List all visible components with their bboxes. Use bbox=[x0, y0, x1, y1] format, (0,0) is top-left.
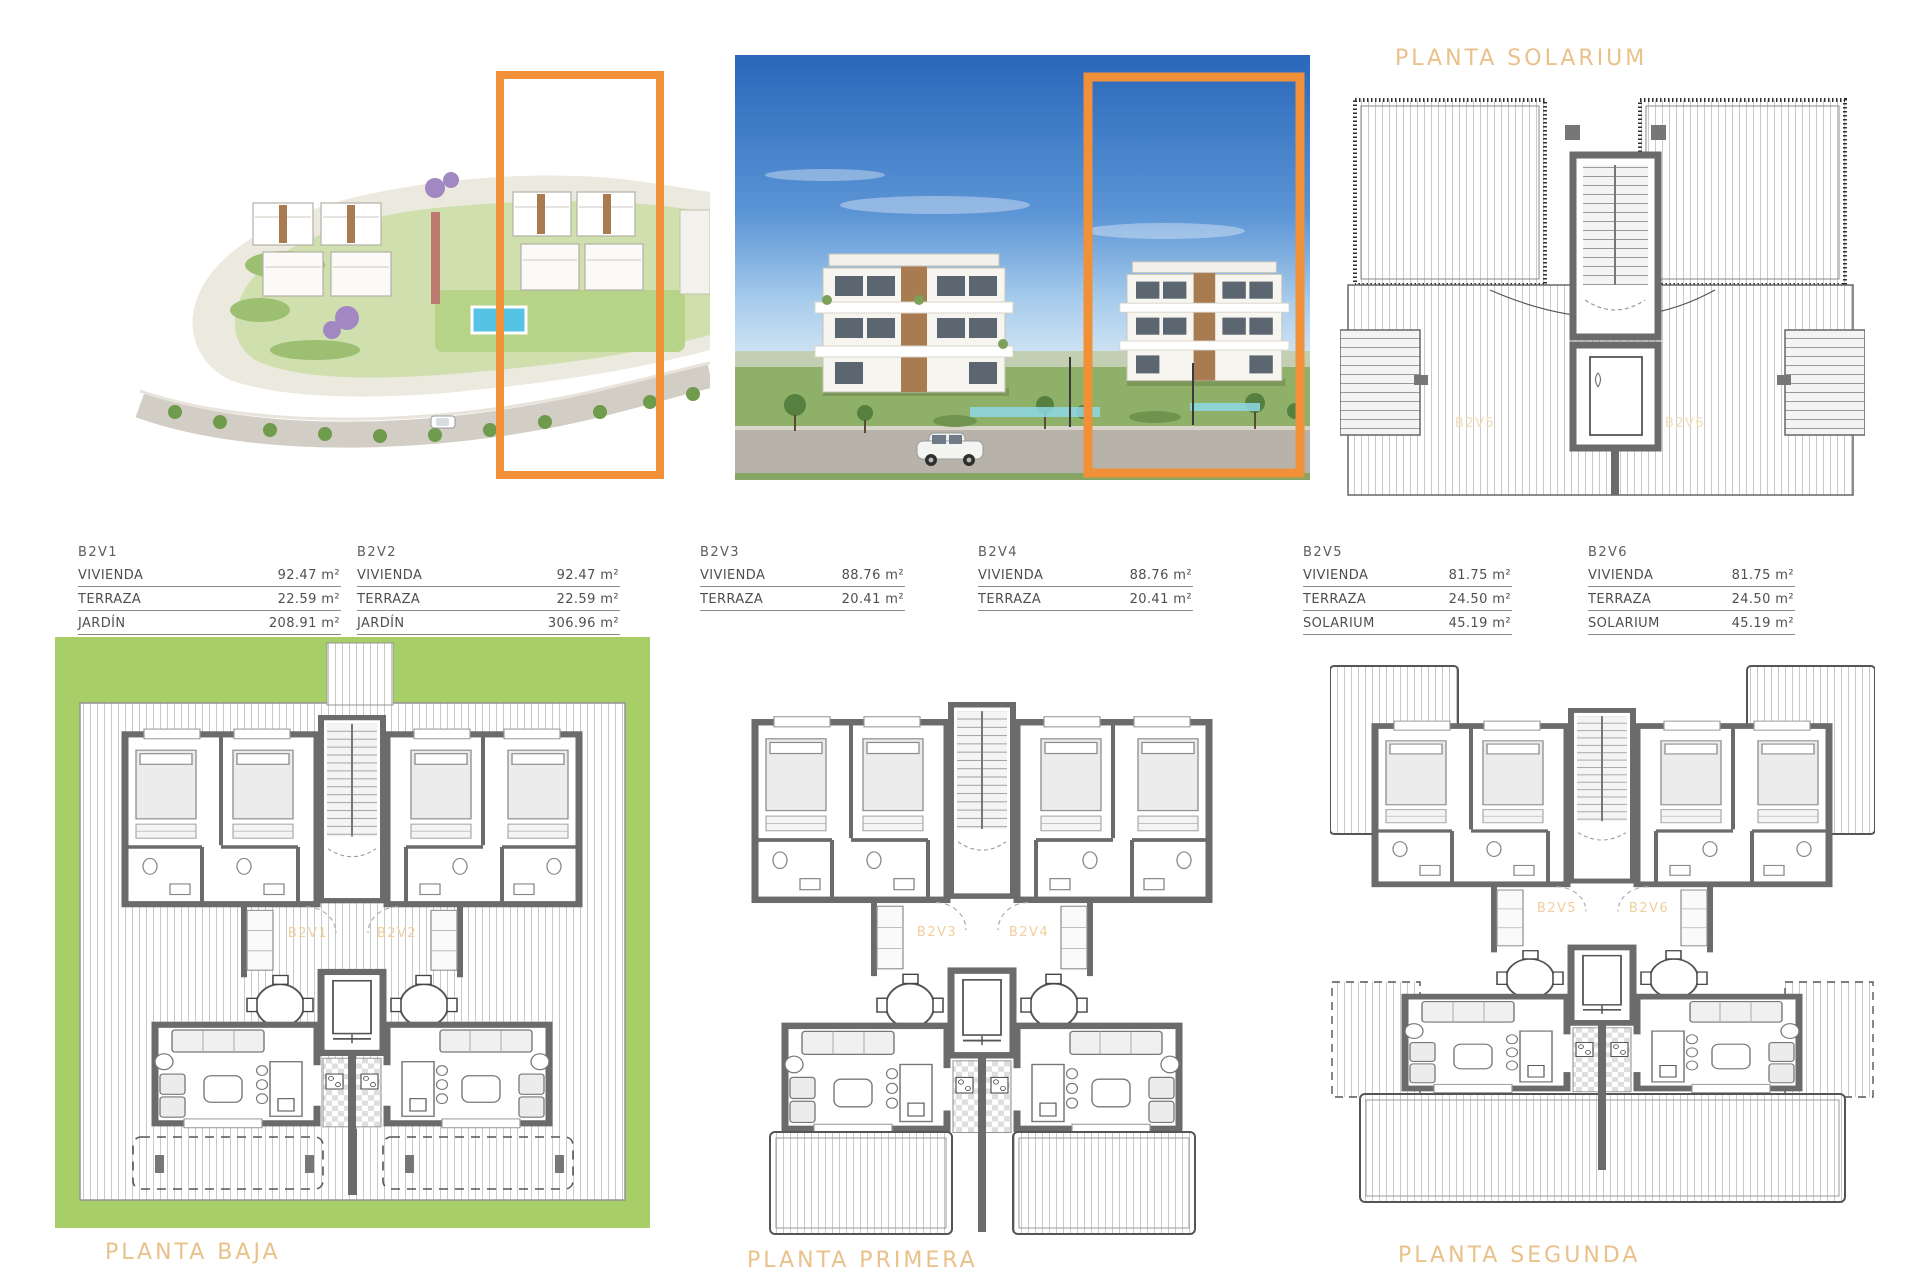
table-row: TERRAZA22.59 m² bbox=[78, 590, 341, 611]
building-left bbox=[815, 254, 1013, 396]
unit-label: B2V6 bbox=[1665, 416, 1705, 431]
terrace-left bbox=[770, 1132, 952, 1234]
unit-table-b2v5: B2V5 VIVIENDA81.75 m² TERRAZA24.50 m² SO… bbox=[1303, 545, 1512, 638]
table-row: VIVIENDA81.75 m² bbox=[1303, 566, 1512, 587]
floor-plan-solarium: B2V5 B2V6 bbox=[1340, 95, 1865, 510]
table-row: TERRAZA22.59 m² bbox=[357, 590, 620, 611]
table-row: TERRAZA24.50 m² bbox=[1588, 590, 1795, 611]
entry-walkway bbox=[327, 643, 393, 705]
unit-name: B2V2 bbox=[357, 545, 620, 560]
plan-sheet: BLOQUE 2 bbox=[0, 0, 1920, 1280]
unit-table-b2v3: B2V3 VIVIENDA88.76 m² TERRAZA20.41 m² bbox=[700, 545, 905, 614]
primera-title: PLANTA PRIMERA bbox=[747, 1248, 978, 1273]
baja-title: PLANTA BAJA bbox=[105, 1240, 281, 1265]
table-row: VIVIENDA81.75 m² bbox=[1588, 566, 1795, 587]
floor-plan-primera: B2V3 B2V4 bbox=[720, 688, 1245, 1248]
side-stairs-left bbox=[1340, 330, 1428, 435]
unit-name: B2V3 bbox=[700, 545, 905, 560]
unit-label: B2V1 bbox=[288, 926, 328, 941]
terrace-right bbox=[1013, 1132, 1195, 1234]
table-row: SOLARIUM45.19 m² bbox=[1303, 614, 1512, 635]
unit-name: B2V1 bbox=[78, 545, 341, 560]
unit-label: B2V6 bbox=[1629, 901, 1669, 916]
table-row: VIVIENDA92.47 m² bbox=[357, 566, 620, 587]
solarium-title: PLANTA SOLARIUM bbox=[1395, 46, 1647, 71]
building-partial bbox=[680, 210, 710, 294]
elevator-shaft bbox=[1573, 345, 1658, 448]
pergola-left bbox=[1355, 100, 1545, 285]
unit-table-b2v6: B2V6 VIVIENDA81.75 m² TERRAZA24.50 m² SO… bbox=[1588, 545, 1795, 638]
unit-label: B2V5 bbox=[1537, 901, 1577, 916]
unit-label: B2V5 bbox=[1455, 416, 1495, 431]
table-row: JARDÍN208.91 m² bbox=[78, 614, 341, 635]
table-row: SOLARIUM45.19 m² bbox=[1588, 614, 1795, 635]
street-render-photo bbox=[735, 55, 1310, 480]
table-row: VIVIENDA92.47 m² bbox=[78, 566, 341, 587]
table-row: VIVIENDA88.76 m² bbox=[700, 566, 905, 587]
table-row: VIVIENDA88.76 m² bbox=[978, 566, 1193, 587]
unit-name: B2V6 bbox=[1588, 545, 1795, 560]
floor-plan-segunda: B2V5 B2V6 bbox=[1330, 660, 1875, 1220]
table-row: JARDÍN306.96 m² bbox=[357, 614, 620, 635]
table-row: TERRAZA20.41 m² bbox=[700, 590, 905, 611]
unit-label: B2V3 bbox=[917, 925, 957, 940]
stair-core bbox=[1573, 155, 1658, 337]
aerial-site-render bbox=[135, 60, 710, 490]
building-right bbox=[1120, 262, 1289, 386]
red-path bbox=[431, 212, 440, 304]
unit-table-b2v2: B2V2 VIVIENDA92.47 m² TERRAZA22.59 m² JA… bbox=[357, 545, 620, 638]
pool bbox=[970, 407, 1100, 417]
unit-label: B2V4 bbox=[1009, 925, 1049, 940]
side-stairs-right bbox=[1777, 330, 1865, 435]
unit-table-b2v1: B2V1 VIVIENDA92.47 m² TERRAZA22.59 m² JA… bbox=[78, 545, 341, 638]
unit-name: B2V4 bbox=[978, 545, 1193, 560]
table-row: TERRAZA24.50 m² bbox=[1303, 590, 1512, 611]
floor-plan-baja: B2V1 B2V2 bbox=[55, 637, 650, 1228]
car bbox=[431, 416, 455, 428]
unit-name: B2V5 bbox=[1303, 545, 1512, 560]
unit-table-b2v4: B2V4 VIVIENDA88.76 m² TERRAZA20.41 m² bbox=[978, 545, 1193, 614]
unit-label: B2V2 bbox=[377, 926, 417, 941]
segunda-title: PLANTA SEGUNDA bbox=[1398, 1243, 1640, 1268]
table-row: TERRAZA20.41 m² bbox=[978, 590, 1193, 611]
pool-2 bbox=[1190, 403, 1260, 411]
pergola-right bbox=[1640, 100, 1845, 285]
